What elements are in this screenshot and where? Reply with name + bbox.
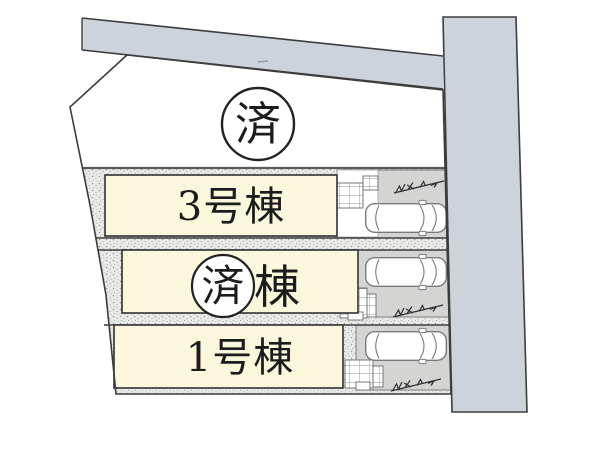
unit-row-1 <box>345 325 451 391</box>
plot-2-sold-badge: 済 <box>192 255 254 317</box>
car-top-view-icon <box>366 254 447 289</box>
plot-2-suffix-label: 棟 <box>254 260 300 314</box>
plot-1-label: 1号棟 <box>186 335 294 381</box>
plot-2-sold-label: 済 <box>202 262 245 312</box>
site-plan-svg: 3号棟 済 棟 1号棟 済 <box>0 0 600 449</box>
porch-step-grid-icon <box>367 294 376 317</box>
porch-step-grid-icon <box>363 176 378 190</box>
porch-step-grid-icon <box>373 366 383 387</box>
plot-3-label: 3号棟 <box>177 184 285 230</box>
porch-landing <box>356 382 370 390</box>
car-top-view-icon <box>366 200 447 235</box>
car-top-view-icon <box>366 328 447 363</box>
site-plan-image: 3号棟 済 棟 1号棟 済 <box>0 0 600 449</box>
top-sold-badge: 済 <box>222 88 294 160</box>
road-right <box>443 17 527 412</box>
survey-mark <box>258 61 268 62</box>
unit-row-3 <box>332 170 451 238</box>
top-sold-label: 済 <box>235 97 281 151</box>
